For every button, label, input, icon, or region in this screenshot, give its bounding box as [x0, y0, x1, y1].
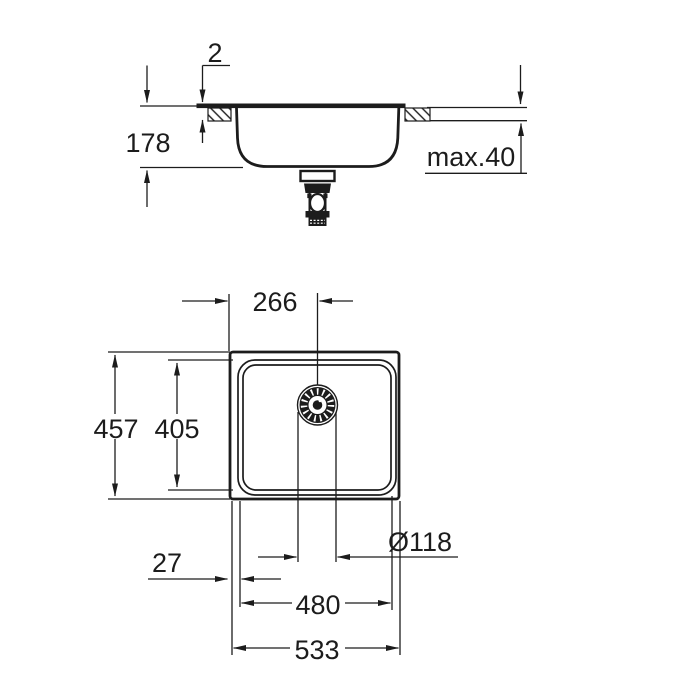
dim-max40-label: max.40: [427, 142, 516, 172]
drain-threaded-tip: [309, 218, 327, 227]
bowl-profile: [237, 108, 399, 167]
drain-nut-upper: [304, 184, 331, 194]
side-view: 2 178 max.40: [125, 38, 527, 226]
dim-2-label: 2: [207, 38, 222, 68]
dimension-overall-depth: 457: [93, 355, 138, 496]
drain-assembly: [301, 171, 335, 226]
dimension-drain-offset: 266: [182, 287, 353, 317]
dimension-rim-height: 2: [203, 38, 231, 143]
dim-178-label: 178: [125, 128, 170, 158]
technical-drawing: 2 178 max.40: [0, 0, 700, 700]
dim-diameter118-label: Ø118: [388, 527, 452, 557]
drain-nut-lower: [306, 211, 330, 218]
sink-rim: [197, 104, 406, 109]
dimension-counter-thickness: max.40: [425, 65, 527, 173]
drain-flange: [301, 171, 335, 181]
countertop-hatch-right: [405, 108, 430, 121]
dim-405-label: 405: [154, 414, 199, 444]
drain-center-highlight: [319, 399, 322, 402]
countertop-hatch-left: [208, 108, 231, 121]
dim-457-label: 457: [93, 414, 138, 444]
dim-27-label: 27: [152, 548, 182, 578]
drain-top-view: [298, 385, 338, 425]
dim-266-label: 266: [252, 287, 297, 317]
dimension-bowl-depth: 405: [154, 363, 199, 487]
dimension-overall-width: 533: [234, 635, 399, 665]
dimension-edge-offset: 27: [148, 548, 281, 579]
sink-outline: [230, 352, 399, 499]
dim-480-label: 480: [295, 590, 340, 620]
drawing-canvas: 2 178 max.40: [0, 0, 700, 700]
dimension-drain-diameter: Ø118: [258, 527, 458, 557]
drain-trap-loop: [310, 194, 325, 212]
dim-533-label: 533: [294, 635, 339, 665]
dimension-depth: 178: [125, 66, 170, 208]
plan-view: 266 457 405 Ø118 27: [93, 287, 458, 665]
dimension-bowl-width: 480: [242, 590, 391, 620]
